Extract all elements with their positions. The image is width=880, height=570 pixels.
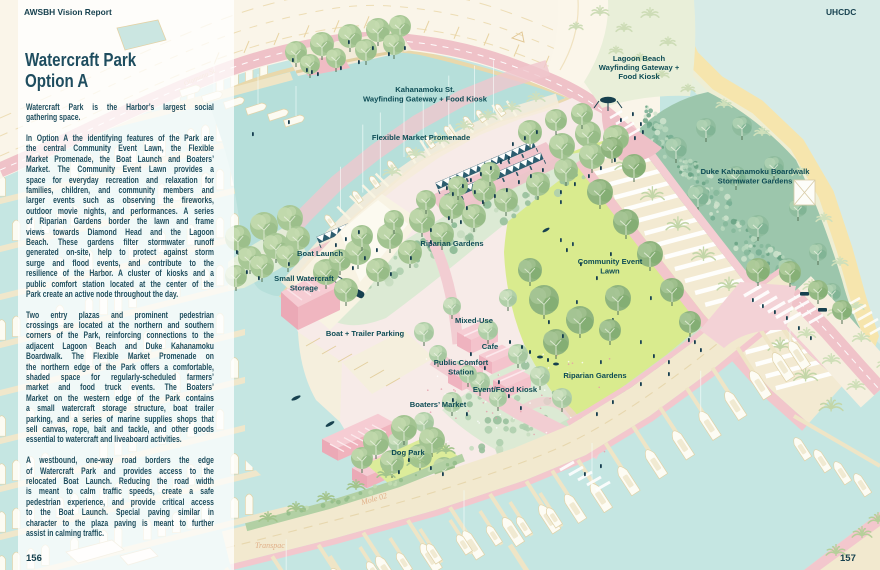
svg-text:Cafe: Cafe: [482, 342, 498, 351]
svg-text:Riparian Gardens: Riparian Gardens: [420, 239, 483, 248]
svg-text:Boaters’ Market: Boaters’ Market: [410, 400, 467, 409]
svg-text:Dog Park: Dog Park: [391, 448, 425, 457]
svg-text:Riparian Gardens: Riparian Gardens: [563, 371, 626, 380]
svg-text:Flexible Market Promenade: Flexible Market Promenade: [372, 133, 470, 142]
svg-text:Transpac: Transpac: [255, 541, 285, 550]
svg-text:Boat Launch: Boat Launch: [297, 249, 343, 258]
svg-text:Boat + Trailer Parking: Boat + Trailer Parking: [326, 329, 405, 338]
svg-text:Event/Food Kiosk: Event/Food Kiosk: [473, 385, 538, 394]
svg-text:Mixed-Use: Mixed-Use: [455, 316, 493, 325]
